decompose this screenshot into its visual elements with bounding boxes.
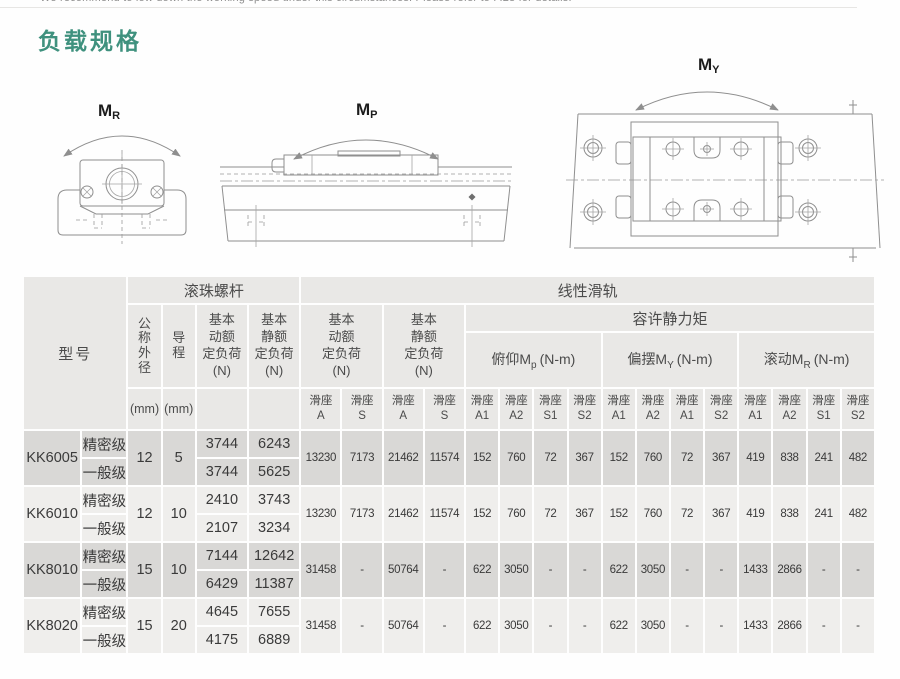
- slider-subcol-header: 滑座 S1: [808, 389, 840, 429]
- top-rule: [0, 7, 857, 8]
- header-row-sliders: (mm) (mm) 滑座 A 滑座 S 滑座 A 滑座 S 滑座 A1 滑座 A…: [24, 389, 874, 429]
- spacer-cell: [197, 389, 247, 429]
- value-cell: 5625: [249, 459, 299, 485]
- value-cell: 7655: [249, 599, 299, 625]
- spacer-cell: [249, 389, 299, 429]
- value-cell: 6889: [249, 627, 299, 653]
- yaw-moment-diagram: MY: [566, 52, 884, 264]
- value-cell: 622: [603, 599, 635, 653]
- col-header-model: 型号: [24, 277, 126, 429]
- value-cell: 3050: [500, 599, 532, 653]
- table-row: KK6010 精密级 12 10 2410 3743 13230 7173 21…: [24, 487, 874, 513]
- lead-cell: 10: [163, 487, 195, 541]
- value-cell: 152: [466, 431, 498, 485]
- value-cell: 838: [773, 431, 805, 485]
- lead-cell: 10: [163, 543, 195, 597]
- value-cell: 367: [569, 487, 601, 541]
- model-cell: KK6010: [24, 487, 80, 541]
- grade-cell: 一般级: [82, 459, 126, 485]
- value-cell: -: [808, 599, 840, 653]
- value-cell: 31458: [301, 543, 340, 597]
- moment-label-mr: MR: [98, 101, 120, 122]
- value-cell: 622: [466, 599, 498, 653]
- value-cell: 7173: [342, 487, 381, 541]
- lead-cell: 20: [163, 599, 195, 653]
- value-cell: -: [534, 543, 566, 597]
- value-cell: 838: [773, 487, 805, 541]
- slider-subcol-header: 滑座 S2: [842, 389, 874, 429]
- value-cell: -: [842, 543, 874, 597]
- value-cell: 7173: [342, 431, 381, 485]
- value-cell: 152: [466, 487, 498, 541]
- col-header-roll-moment: 滚动MR(N-m): [739, 333, 874, 387]
- value-cell: -: [425, 543, 464, 597]
- value-cell: 3050: [637, 599, 669, 653]
- moment-label-my: MY: [698, 55, 720, 76]
- table-row: KK8020 精密级 15 20 4645 7655 31458 - 50764…: [24, 599, 874, 625]
- value-cell: 482: [842, 431, 874, 485]
- pitch-moment-diagram: MP: [220, 95, 512, 250]
- grade-cell: 一般级: [82, 571, 126, 597]
- slider-subcol-header: 滑座 S: [425, 389, 464, 429]
- slider-subcol-header: 滑座 A1: [739, 389, 771, 429]
- value-cell: 482: [842, 487, 874, 541]
- dia-cell: 15: [128, 599, 160, 653]
- slider-subcol-header: 滑座 A: [384, 389, 423, 429]
- value-cell: 3050: [500, 543, 532, 597]
- unit-outer-dia: (mm): [128, 389, 160, 429]
- unit-lead: (mm): [163, 389, 195, 429]
- value-cell: 1433: [739, 543, 771, 597]
- model-cell: KK6005: [24, 431, 80, 485]
- value-cell: 1433: [739, 599, 771, 653]
- dia-cell: 15: [128, 543, 160, 597]
- model-cell: KK8010: [24, 543, 80, 597]
- col-header-bs-static-load: 基本 静额 定负荷 (N): [249, 305, 299, 387]
- value-cell: -: [342, 543, 381, 597]
- roll-moment-diagram: MR: [36, 92, 208, 254]
- value-cell: 11574: [425, 487, 464, 541]
- value-cell: 72: [534, 487, 566, 541]
- value-cell: 3050: [637, 543, 669, 597]
- value-cell: 760: [500, 487, 532, 541]
- value-cell: 3234: [249, 515, 299, 541]
- col-header-lead: 导 程: [163, 305, 195, 387]
- col-header-pitch-moment: 俯仰Mp(N-m): [466, 333, 601, 387]
- col-header-lg-dynamic-load: 基本 动额 定负荷 (N): [301, 305, 381, 387]
- slider-subcol-header: 滑座 S: [342, 389, 381, 429]
- col-header-outer-dia: 公 称 外 径: [128, 305, 160, 387]
- col-header-bs-dynamic-load: 基本 动额 定负荷 (N): [197, 305, 247, 387]
- grade-cell: 精密级: [82, 599, 126, 625]
- value-cell: 367: [705, 431, 737, 485]
- value-cell: -: [705, 543, 737, 597]
- slider-subcol-header: 滑座 S2: [705, 389, 737, 429]
- value-cell: 72: [534, 431, 566, 485]
- value-cell: 21462: [384, 487, 423, 541]
- value-cell: 2866: [773, 543, 805, 597]
- grade-cell: 精密级: [82, 487, 126, 513]
- value-cell: 50764: [384, 599, 423, 653]
- value-cell: -: [569, 543, 601, 597]
- value-cell: 2410: [197, 487, 247, 513]
- grade-cell: 精密级: [82, 543, 126, 569]
- value-cell: -: [808, 543, 840, 597]
- value-cell: 11387: [249, 571, 299, 597]
- value-cell: 3743: [249, 487, 299, 513]
- page-title: 负载规格: [38, 22, 142, 56]
- value-cell: 241: [808, 487, 840, 541]
- value-cell: 50764: [384, 543, 423, 597]
- page-root: We recommend to low down the working spe…: [0, 0, 900, 679]
- slider-subcol-header: 滑座 A1: [671, 389, 703, 429]
- value-cell: -: [705, 599, 737, 653]
- value-cell: -: [569, 599, 601, 653]
- table-row: KK8010 精密级 15 10 7144 12642 31458 - 5076…: [24, 543, 874, 569]
- value-cell: 622: [466, 543, 498, 597]
- model-cell: KK8020: [24, 599, 80, 653]
- value-cell: 12642: [249, 543, 299, 569]
- grade-cell: 精密级: [82, 431, 126, 457]
- slider-subcol-header: 滑座 A2: [773, 389, 805, 429]
- value-cell: 152: [603, 431, 635, 485]
- value-cell: 21462: [384, 431, 423, 485]
- value-cell: 2866: [773, 599, 805, 653]
- grade-cell: 一般级: [82, 515, 126, 541]
- value-cell: 13230: [301, 431, 340, 485]
- value-cell: 3744: [197, 431, 247, 457]
- value-cell: 11574: [425, 431, 464, 485]
- col-header-yaw-moment: 偏摆MY(N-m): [603, 333, 738, 387]
- col-header-lg-static-load: 基本 静额 定负荷 (N): [384, 305, 464, 387]
- value-cell: -: [425, 599, 464, 653]
- value-cell: 419: [739, 487, 771, 541]
- value-cell: 367: [705, 487, 737, 541]
- slider-subcol-header: 滑座 S2: [569, 389, 601, 429]
- group-header-linear-guide: 线性滑轨: [301, 277, 874, 303]
- value-cell: 622: [603, 543, 635, 597]
- value-cell: 2107: [197, 515, 247, 541]
- header-row-groups: 型号 滚珠螺杆 线性滑轨: [24, 277, 874, 303]
- grade-cell: 一般级: [82, 627, 126, 653]
- spec-table: 型号 滚珠螺杆 线性滑轨 公 称 外 径 导 程 基本 动额 定负荷 (N) 基…: [22, 275, 876, 655]
- value-cell: 4175: [197, 627, 247, 653]
- value-cell: 367: [569, 431, 601, 485]
- group-header-static-moment: 容许静力矩: [466, 305, 874, 331]
- value-cell: -: [671, 543, 703, 597]
- value-cell: -: [342, 599, 381, 653]
- slider-subcol-header: 滑座 S1: [534, 389, 566, 429]
- value-cell: 3744: [197, 459, 247, 485]
- slider-subcol-header: 滑座 A2: [500, 389, 532, 429]
- value-cell: -: [842, 599, 874, 653]
- value-cell: 760: [637, 431, 669, 485]
- value-cell: 760: [637, 487, 669, 541]
- slider-subcol-header: 滑座 A2: [637, 389, 669, 429]
- value-cell: -: [671, 599, 703, 653]
- group-header-ball-screw: 滚珠螺杆: [128, 277, 299, 303]
- value-cell: 419: [739, 431, 771, 485]
- header-row-sub: 公 称 外 径 导 程 基本 动额 定负荷 (N) 基本 静额 定负荷 (N) …: [24, 305, 874, 331]
- slider-subcol-header: 滑座 A1: [603, 389, 635, 429]
- value-cell: 31458: [301, 599, 340, 653]
- value-cell: 6429: [197, 571, 247, 597]
- slider-subcol-header: 滑座 A: [301, 389, 340, 429]
- value-cell: 4645: [197, 599, 247, 625]
- top-note: We recommend to low down the working spe…: [40, 0, 870, 4]
- value-cell: -: [534, 599, 566, 653]
- lead-cell: 5: [163, 431, 195, 485]
- value-cell: 13230: [301, 487, 340, 541]
- value-cell: 7144: [197, 543, 247, 569]
- moment-label-mp: MP: [356, 100, 378, 121]
- table-row: KK6005 精密级 12 5 3744 6243 13230 7173 214…: [24, 431, 874, 457]
- value-cell: 760: [500, 431, 532, 485]
- value-cell: 72: [671, 431, 703, 485]
- dia-cell: 12: [128, 431, 160, 485]
- value-cell: 6243: [249, 431, 299, 457]
- value-cell: 241: [808, 431, 840, 485]
- dia-cell: 12: [128, 487, 160, 541]
- slider-subcol-header: 滑座 A1: [466, 389, 498, 429]
- value-cell: 72: [671, 487, 703, 541]
- value-cell: 152: [603, 487, 635, 541]
